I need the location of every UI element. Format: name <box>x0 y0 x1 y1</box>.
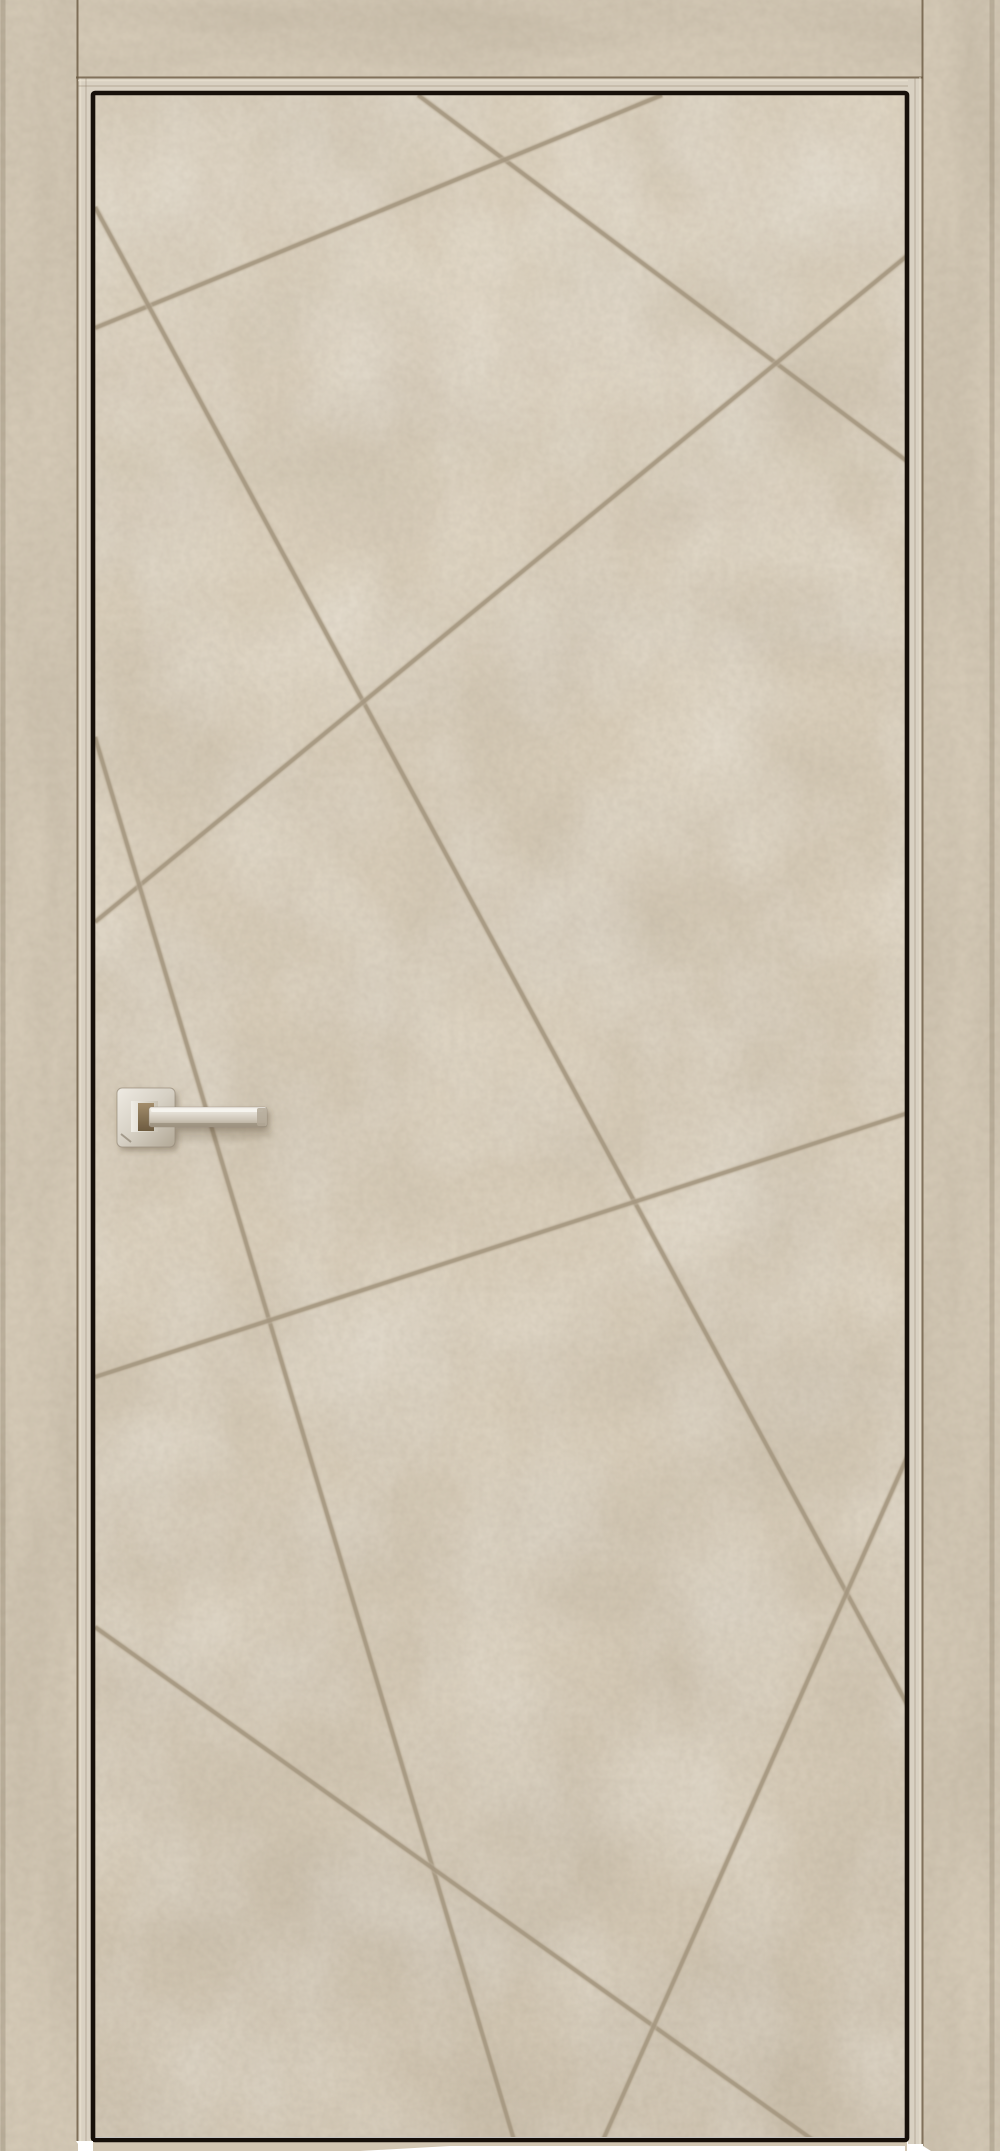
head-casing <box>78 0 923 77</box>
floor-gap-center-band <box>360 2146 905 2151</box>
lever-top-highlight <box>151 1109 263 1113</box>
right-casing <box>923 0 1000 2151</box>
lever-bottom-shade <box>150 1123 265 1127</box>
floor-gap-right-notch <box>908 2144 923 2151</box>
floor-gap-left-notch <box>76 2141 93 2151</box>
left-casing <box>0 0 78 2151</box>
lever-tip-shade <box>257 1108 267 1126</box>
door-product-photo <box>0 0 1000 2151</box>
door-photo-canvas <box>0 0 1000 2151</box>
top-jamb-strip <box>78 77 908 93</box>
